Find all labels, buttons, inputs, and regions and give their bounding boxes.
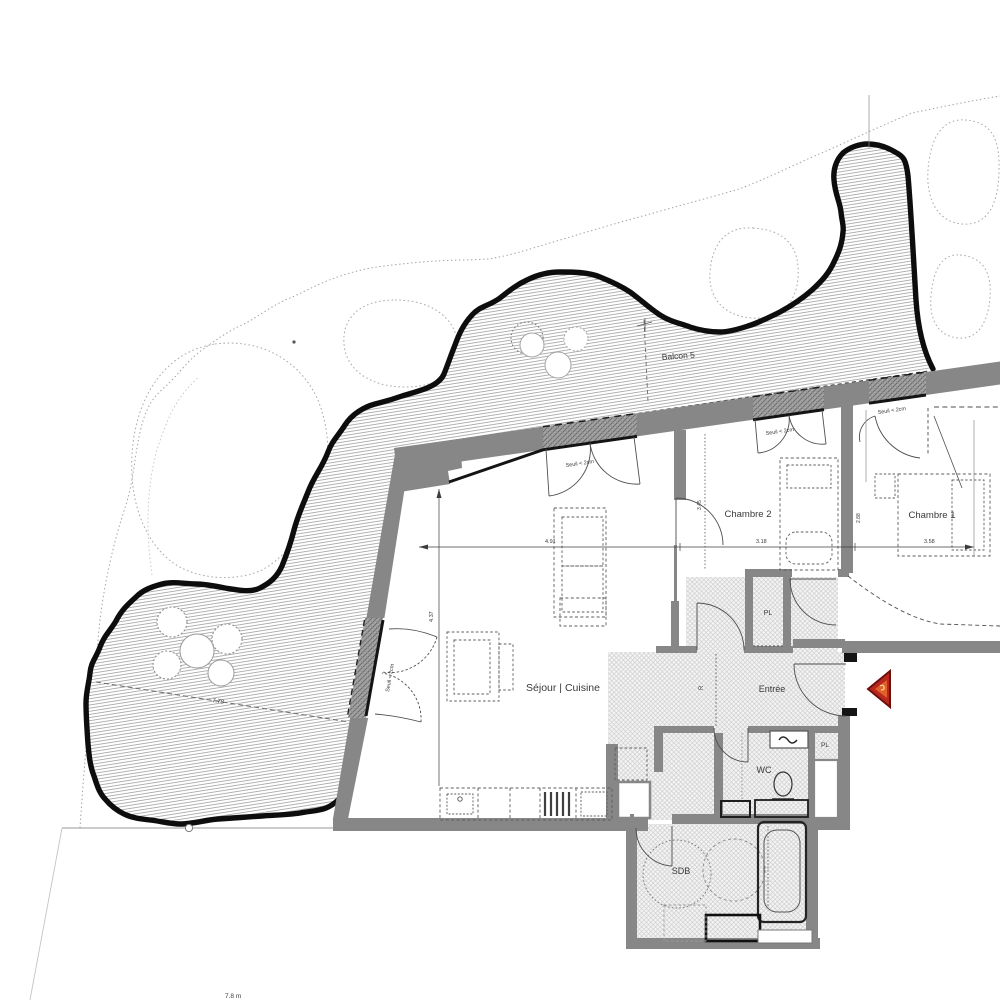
svg-text:PL: PL	[821, 742, 829, 749]
svg-text:7.8 m: 7.8 m	[225, 993, 241, 1000]
svg-text:3.45: 3.45	[697, 500, 703, 510]
svg-text:3.58: 3.58	[924, 539, 935, 545]
svg-text:SDB: SDB	[672, 866, 691, 876]
svg-text:Entrée: Entrée	[759, 684, 786, 694]
svg-text:4.37: 4.37	[429, 611, 435, 622]
svg-text:3.18: 3.18	[756, 539, 767, 545]
svg-text:PL: PL	[764, 610, 773, 617]
svg-text:Chambre 2: Chambre 2	[725, 509, 772, 520]
svg-text:WC: WC	[757, 765, 772, 775]
svg-text:Séjour | Cuisine: Séjour | Cuisine	[526, 682, 600, 694]
svg-text:Chambre 1: Chambre 1	[909, 510, 956, 521]
svg-text:2.88: 2.88	[856, 513, 862, 523]
svg-text:R: R	[699, 685, 705, 690]
svg-text:4.91: 4.91	[545, 539, 556, 545]
